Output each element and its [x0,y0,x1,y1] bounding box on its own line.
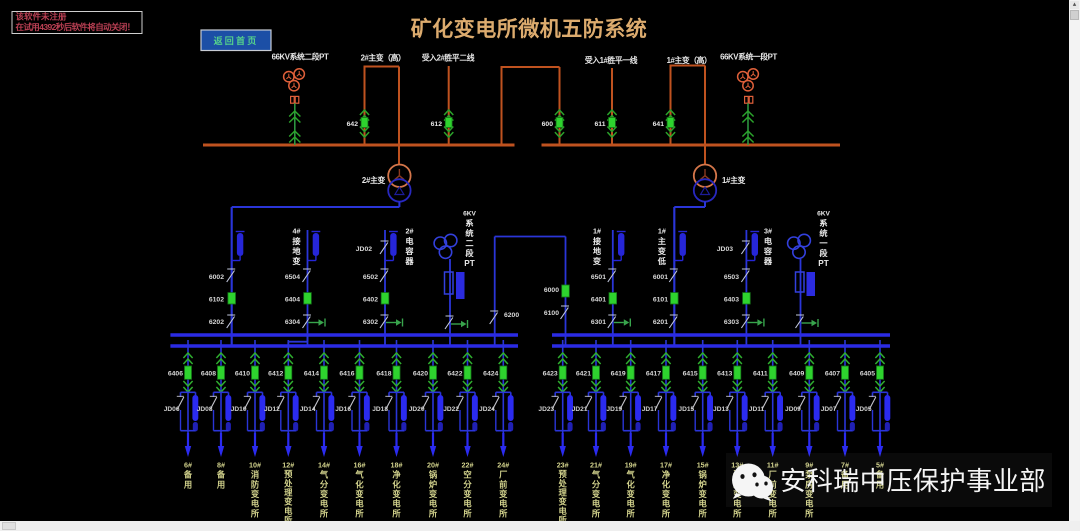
svg-text:JD17: JD17 [642,406,658,413]
svg-text:地: 地 [593,246,602,256]
svg-text:6416: 6416 [339,371,354,378]
svg-text:变: 变 [658,246,667,256]
svg-text:18#: 18# [391,461,403,470]
svg-text:6#: 6# [184,461,192,470]
svg-text:电: 电 [405,236,414,246]
svg-text:JD07: JD07 [821,406,837,413]
svg-text:6423: 6423 [543,371,558,378]
svg-text:所: 所 [805,508,814,518]
svg-text:低: 低 [657,256,667,266]
svg-text:6413: 6413 [717,371,732,378]
svg-text:10#: 10# [249,461,261,470]
svg-text:净: 净 [392,470,401,480]
svg-text:PT: PT [464,259,474,268]
svg-text:6304: 6304 [285,319,300,326]
svg-text:JD15: JD15 [678,406,694,413]
svg-text:6501: 6501 [591,274,606,281]
svg-text:电: 电 [627,499,636,509]
svg-text:容: 容 [763,246,773,256]
svg-text:所: 所 [627,508,636,518]
svg-text:JD12: JD12 [264,406,280,413]
svg-text:锅: 锅 [698,470,707,480]
svg-text:6414: 6414 [304,371,319,378]
svg-text:6KV: 6KV [817,210,830,217]
svg-text:统: 统 [465,228,474,238]
svg-text:该软件未注册: 该软件未注册 [16,12,68,22]
svg-text:炉: 炉 [429,479,437,489]
svg-text:6403: 6403 [724,297,739,304]
svg-text:6202: 6202 [209,319,224,326]
svg-text:6408: 6408 [201,371,216,378]
svg-text:主: 主 [658,236,666,246]
svg-text:电: 电 [662,499,671,509]
svg-text:6301: 6301 [591,319,606,326]
svg-text:2#主变: 2#主变 [362,175,386,185]
svg-text:电: 电 [429,499,438,509]
svg-text:接: 接 [593,236,602,246]
svg-text:受入1#胜平一线: 受入1#胜平一线 [585,55,638,65]
svg-text:6504: 6504 [285,274,300,281]
svg-text:化: 化 [627,479,636,489]
svg-text:6404: 6404 [285,297,300,304]
svg-text:JD08: JD08 [197,406,213,413]
svg-text:JD16: JD16 [335,406,351,413]
svg-text:变: 变 [355,489,364,499]
svg-text:641: 641 [653,121,665,128]
svg-text:6409: 6409 [789,371,804,378]
svg-text:段: 段 [465,248,474,258]
svg-text:2#主变（高）: 2#主变（高） [361,53,406,63]
svg-text:系: 系 [819,218,827,228]
svg-text:炉: 炉 [699,479,707,489]
svg-text:JD03: JD03 [717,246,733,253]
svg-text:20#: 20# [427,461,439,470]
svg-text:612: 612 [431,121,443,128]
svg-text:段: 段 [819,248,828,258]
svg-text:所: 所 [429,508,438,518]
svg-text:21#: 21# [590,461,602,470]
svg-text:变: 变 [592,489,601,499]
svg-text:JD18: JD18 [372,406,388,413]
svg-text:6415: 6415 [683,371,698,378]
svg-text:所: 所 [699,508,708,518]
svg-text:6411: 6411 [753,371,768,378]
svg-text:24#: 24# [497,461,509,470]
svg-text:变: 变 [251,489,260,499]
svg-text:4#: 4# [293,227,301,236]
svg-text:16#: 16# [354,461,366,470]
svg-text:化: 化 [355,479,364,489]
svg-text:变: 变 [463,489,472,499]
svg-text:系: 系 [465,218,473,228]
svg-text:器: 器 [763,257,773,266]
svg-text:2#: 2# [406,227,414,236]
svg-text:6302: 6302 [363,319,378,326]
svg-text:JD19: JD19 [606,406,622,413]
svg-text:JD05: JD05 [856,406,872,413]
svg-text:6410: 6410 [235,371,250,378]
svg-text:变: 变 [499,489,508,499]
svg-text:空: 空 [463,470,471,480]
svg-text:6412: 6412 [268,371,283,378]
svg-text:15#: 15# [697,461,709,470]
svg-text:6417: 6417 [646,371,661,378]
svg-text:气: 气 [354,470,364,480]
svg-text:变: 变 [320,489,329,499]
svg-text:6420: 6420 [413,371,428,378]
svg-text:所: 所 [499,508,508,518]
svg-text:所: 所 [251,508,260,518]
svg-text:22#: 22# [462,461,474,470]
svg-text:变: 变 [292,256,301,266]
svg-text:6001: 6001 [653,274,668,281]
svg-text:二: 二 [465,239,473,248]
svg-text:容: 容 [404,246,414,256]
svg-text:所: 所 [463,508,472,518]
svg-text:6406: 6406 [168,371,183,378]
svg-text:电: 电 [320,499,329,509]
svg-text:6002: 6002 [209,274,224,281]
svg-text:6424: 6424 [483,371,498,378]
svg-text:6100: 6100 [544,310,559,317]
svg-text:所: 所 [355,508,364,518]
svg-text:气: 气 [591,470,601,480]
svg-text:分: 分 [463,479,472,489]
svg-text:电: 电 [392,499,401,509]
svg-text:JD10: JD10 [231,406,247,413]
svg-text:变: 变 [429,489,438,499]
svg-text:JD09: JD09 [785,406,801,413]
svg-text:14#: 14# [318,461,330,470]
svg-text:锅: 锅 [428,470,437,480]
svg-text:JD06: JD06 [164,406,180,413]
svg-text:JD22: JD22 [443,406,459,413]
svg-text:611: 611 [595,121,606,128]
svg-text:6201: 6201 [653,319,668,326]
svg-text:返回首页: 返回首页 [214,35,259,46]
svg-text:6101: 6101 [653,297,668,304]
svg-text:电: 电 [251,499,260,509]
svg-text:6418: 6418 [376,371,391,378]
svg-text:6200: 6200 [504,312,519,319]
svg-text:1#主变（高）: 1#主变（高） [667,55,712,65]
svg-text:防: 防 [251,479,260,489]
svg-text:电: 电 [355,499,364,509]
svg-text:所: 所 [392,508,401,518]
svg-text:6407: 6407 [825,371,840,378]
svg-text:变: 变 [392,489,401,499]
svg-text:JD14: JD14 [300,406,316,413]
svg-text:66KV系统一段PT: 66KV系统一段PT [720,52,777,62]
svg-text:前: 前 [499,479,508,489]
svg-text:6401: 6401 [591,297,606,304]
svg-text:所: 所 [320,508,329,518]
svg-text:JD02: JD02 [356,246,372,253]
svg-text:化: 化 [662,479,671,489]
svg-text:用: 用 [216,479,225,489]
svg-text:6000: 6000 [544,287,559,294]
svg-text:1#主变: 1#主变 [722,175,746,185]
svg-text:化: 化 [392,479,401,489]
svg-text:6102: 6102 [209,297,224,304]
svg-text:电: 电 [764,236,773,246]
svg-text:气: 气 [319,470,329,480]
svg-text:19#: 19# [625,461,637,470]
svg-text:用: 用 [183,479,192,489]
svg-text:电: 电 [699,499,708,509]
svg-text:一: 一 [819,239,828,248]
svg-text:备: 备 [216,470,226,480]
svg-text:所: 所 [769,508,778,518]
svg-text:17#: 17# [660,461,672,470]
svg-text:接: 接 [292,236,301,246]
svg-text:变: 变 [699,489,708,499]
svg-text:600: 600 [542,121,554,128]
svg-text:6503: 6503 [724,274,739,281]
svg-text:地: 地 [292,246,301,256]
svg-text:JD23: JD23 [538,406,554,413]
svg-text:分: 分 [592,479,601,489]
svg-text:电: 电 [592,499,601,509]
svg-text:矿化变电所微机五防系统: 矿化变电所微机五防系统 [411,17,648,41]
svg-text:变: 变 [627,489,636,499]
svg-text:6502: 6502 [363,274,378,281]
svg-text:3#: 3# [764,227,772,236]
svg-text:JD13: JD13 [713,406,729,413]
svg-text:气: 气 [626,470,636,480]
svg-text:电: 电 [463,499,472,509]
svg-text:PT: PT [818,259,828,268]
svg-text:电: 电 [499,499,508,509]
svg-text:642: 642 [347,121,359,128]
svg-text:受入2#胜平二线: 受入2#胜平二线 [422,53,475,63]
svg-text:JD24: JD24 [479,406,495,413]
svg-text:1#: 1# [658,227,666,236]
svg-text:6422: 6422 [447,371,462,378]
svg-text:6405: 6405 [860,371,875,378]
svg-text:所: 所 [592,508,601,518]
svg-text:备: 备 [183,470,193,480]
svg-text:分: 分 [320,479,329,489]
svg-text:8#: 8# [217,461,225,470]
svg-text:66KV系统二段PT: 66KV系统二段PT [272,52,329,62]
svg-text:安科瑞中压保护事业部: 安科瑞中压保护事业部 [780,466,1046,496]
svg-text:6421: 6421 [576,371,591,378]
svg-text:消: 消 [251,470,259,480]
svg-text:6402: 6402 [363,297,378,304]
svg-text:6419: 6419 [611,371,626,378]
svg-text:变: 变 [593,256,602,266]
svg-text:净: 净 [662,470,671,480]
svg-text:1#: 1# [593,227,601,236]
svg-text:JD20: JD20 [409,406,425,413]
svg-text:所: 所 [733,508,742,518]
svg-text:JD21: JD21 [572,406,588,413]
svg-text:JD11: JD11 [749,406,765,413]
svg-text:6KV: 6KV [463,210,476,217]
svg-text:6303: 6303 [724,319,739,326]
svg-text:统: 统 [819,228,828,238]
svg-text:在试用4392秒后软件将自动关闭！: 在试用4392秒后软件将自动关闭！ [16,22,135,32]
svg-text:器: 器 [404,257,414,266]
svg-text:变: 变 [662,489,671,499]
svg-text:厂: 厂 [499,470,507,480]
svg-text:所: 所 [662,508,671,518]
